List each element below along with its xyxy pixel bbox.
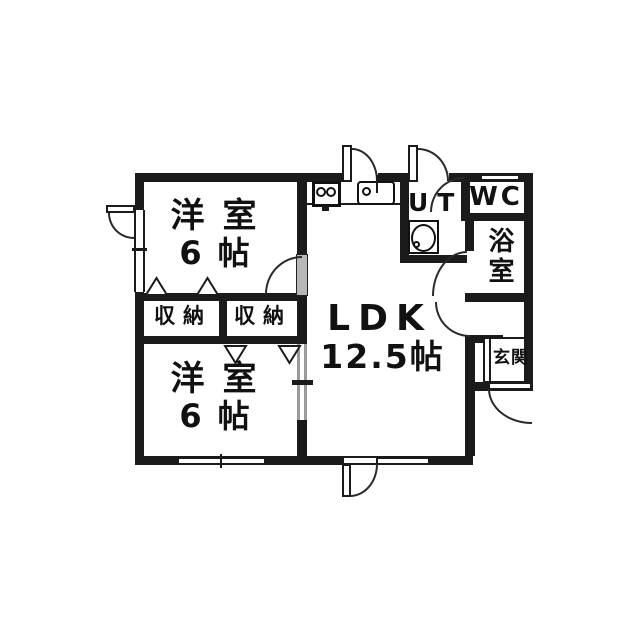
entrance-door-arc [488, 389, 532, 424]
kitchen-exterior-door-arc [352, 148, 378, 181]
floor-plan: 洋室 6帖 洋室 6帖 LDK 12.5帖 収納 収納 UT WC 浴室 玄関 [0, 0, 640, 640]
sink-faucet-icon [376, 175, 378, 193]
stove-knob [322, 206, 329, 211]
bedroom-bottom-label: 洋室 [155, 362, 290, 396]
window-tick [132, 248, 147, 251]
closet-right-label: 収納 [227, 306, 299, 327]
utility-label: UT [408, 190, 462, 215]
wall-ldk-east [465, 337, 475, 456]
casement-window-leaf [106, 205, 135, 213]
hall-door-arc [435, 302, 470, 337]
stove-burner-icon [326, 187, 336, 197]
entrance-step-line [489, 338, 491, 382]
bath-label: 浴室 [486, 222, 512, 292]
casement-window-arc [108, 213, 134, 239]
bedroom-top-label: 洋室 [155, 199, 290, 233]
closet-left-label: 収納 [145, 306, 221, 327]
wall-wc-bottom [461, 213, 533, 221]
ldk-size: 12.5帖 [315, 340, 450, 373]
folding-door-icon [145, 277, 168, 296]
window-ldk-bottom [377, 457, 428, 465]
sliding-door-handle [292, 380, 313, 385]
wc-label: WC [466, 184, 526, 210]
folding-door-icon [196, 277, 219, 296]
bedroom-bottom-size: 6帖 [155, 400, 290, 432]
wall-ldk-west-upper [297, 182, 307, 256]
wall-ldk-west-lower [297, 420, 307, 456]
wall-bath-left [465, 221, 474, 251]
sink-drain-icon [362, 187, 371, 196]
washbasin-drain-icon [413, 241, 420, 248]
window-wc-top [482, 174, 518, 181]
ldk-label: LDK [322, 301, 437, 337]
window-bedroom-top-left [134, 210, 145, 292]
wall-bath-bottom [465, 293, 533, 302]
utility-exterior-door-arc [418, 148, 449, 181]
stove-burner-icon [316, 187, 326, 197]
utility-exterior-door-leaf [408, 145, 418, 182]
ldk-garden-door-arc [350, 464, 378, 497]
bedroom-top-size: 6帖 [155, 237, 290, 269]
window-tick [220, 454, 222, 468]
entrance-label: 玄関 [492, 350, 530, 367]
kitchen-exterior-door-leaf [342, 145, 352, 182]
